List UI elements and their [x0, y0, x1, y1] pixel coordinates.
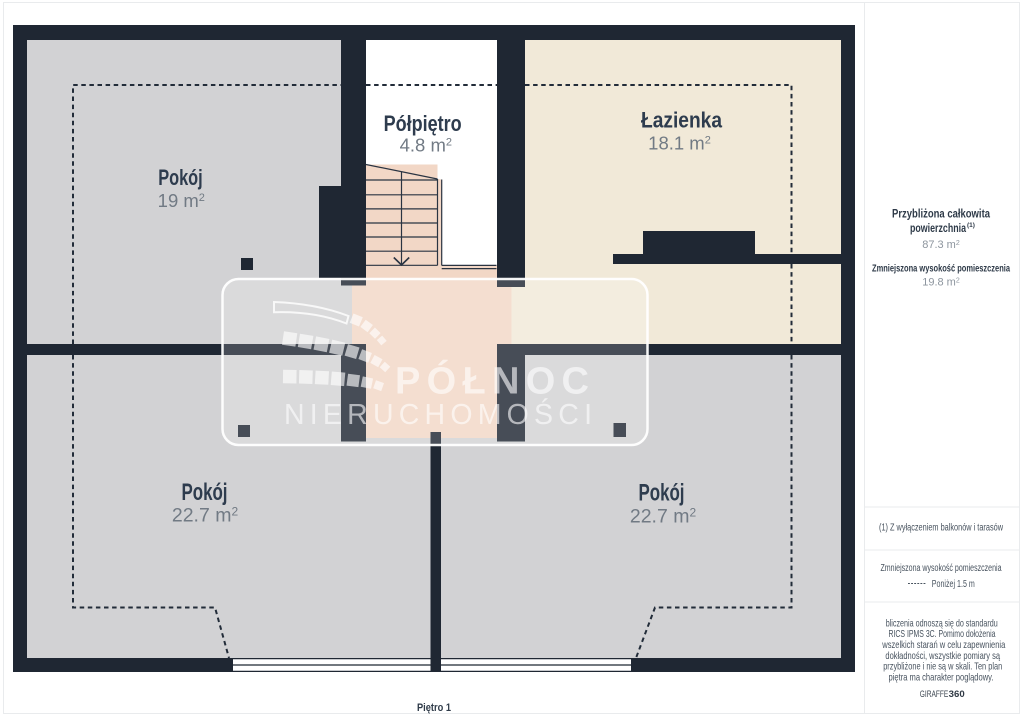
svg-text:Pokój: Pokój: [639, 480, 685, 507]
svg-text:Piętro 1: Piętro 1: [417, 702, 451, 714]
svg-text:Przybliżona całkowita: Przybliżona całkowita: [892, 209, 990, 221]
svg-text:22.7 m2: 22.7 m2: [630, 506, 697, 528]
svg-text:22.7 m2: 22.7 m2: [172, 505, 239, 527]
svg-text:19 m2: 19 m2: [158, 190, 205, 211]
svg-text:NIERUCHOMOŚCI: NIERUCHOMOŚCI: [284, 398, 592, 431]
svg-text:(1): (1): [967, 222, 975, 229]
svg-text:Zmniejszona wysokość pomieszcz: Zmniejszona wysokość pomieszczenia: [881, 563, 1002, 574]
svg-text:Poniżej 1.5 m: Poniżej 1.5 m: [932, 579, 975, 590]
svg-text:Półpiętro: Półpiętro: [384, 111, 462, 136]
svg-text:GIRAFFE: GIRAFFE: [920, 689, 949, 700]
svg-text:87.3 m2: 87.3 m2: [922, 239, 960, 251]
svg-text:4.8 m2: 4.8 m2: [400, 135, 452, 156]
svg-text:Zmniejszona wysokość pomieszcz: Zmniejszona wysokość pomieszczenia: [872, 262, 1010, 274]
svg-text:18.1 m2: 18.1 m2: [648, 133, 711, 154]
svg-text:Pokój: Pokój: [158, 165, 203, 190]
svg-text:(1) Z wyłączeniem balkonów i t: (1) Z wyłączeniem balkonów i tarasów: [879, 523, 1004, 534]
svg-text:Łazienka: Łazienka: [641, 108, 723, 133]
svg-text:Pokój: Pokój: [182, 479, 228, 506]
svg-text:piętra ma charakter poglądowy.: piętra ma charakter poglądowy.: [889, 672, 994, 684]
svg-text:powierzchnia: powierzchnia: [910, 223, 966, 235]
svg-text:19.8 m2: 19.8 m2: [922, 277, 960, 289]
svg-text:360: 360: [949, 689, 965, 700]
